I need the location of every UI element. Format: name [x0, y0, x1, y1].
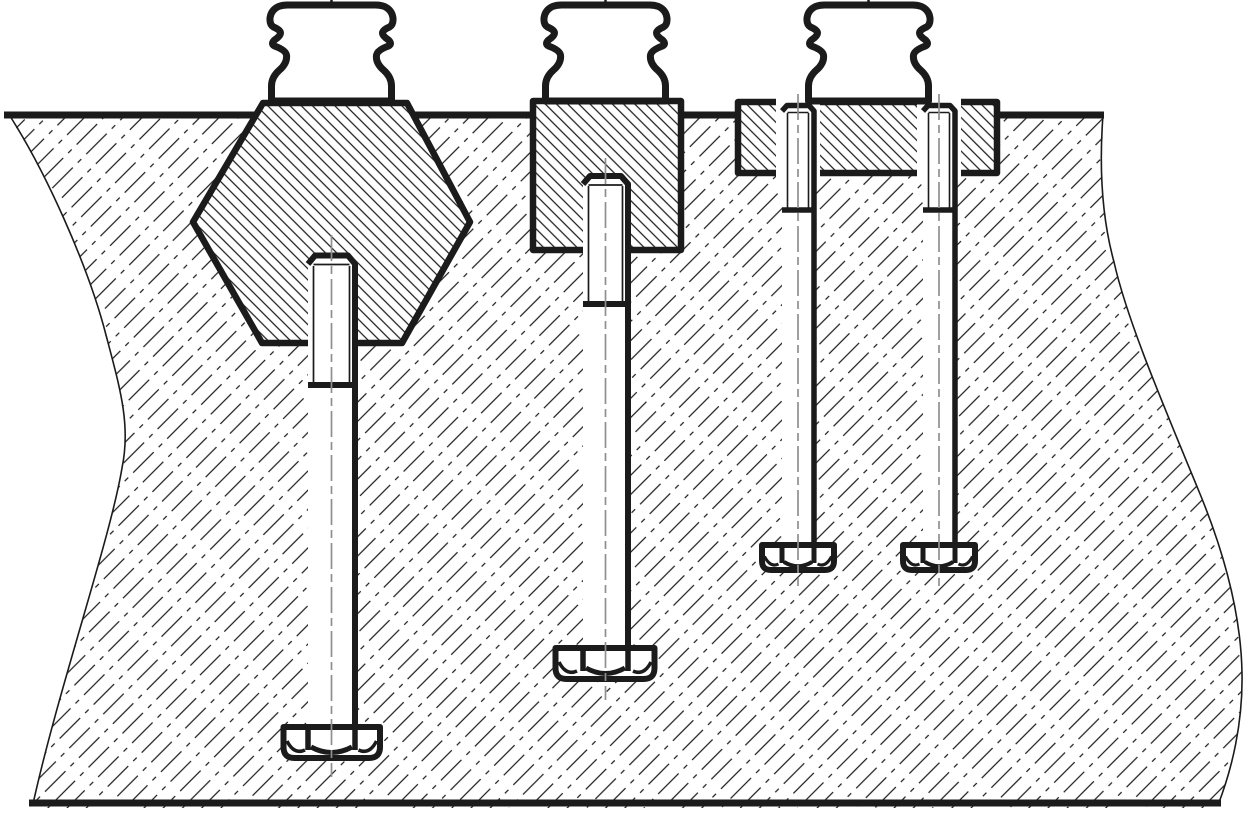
- drawing-canvas: [0, 0, 1246, 815]
- clamp-knob-left: [270, 5, 393, 101]
- section-drawing: [0, 0, 1246, 815]
- clamp-knob-right: [807, 5, 930, 101]
- clamp-knob-middle: [544, 5, 667, 101]
